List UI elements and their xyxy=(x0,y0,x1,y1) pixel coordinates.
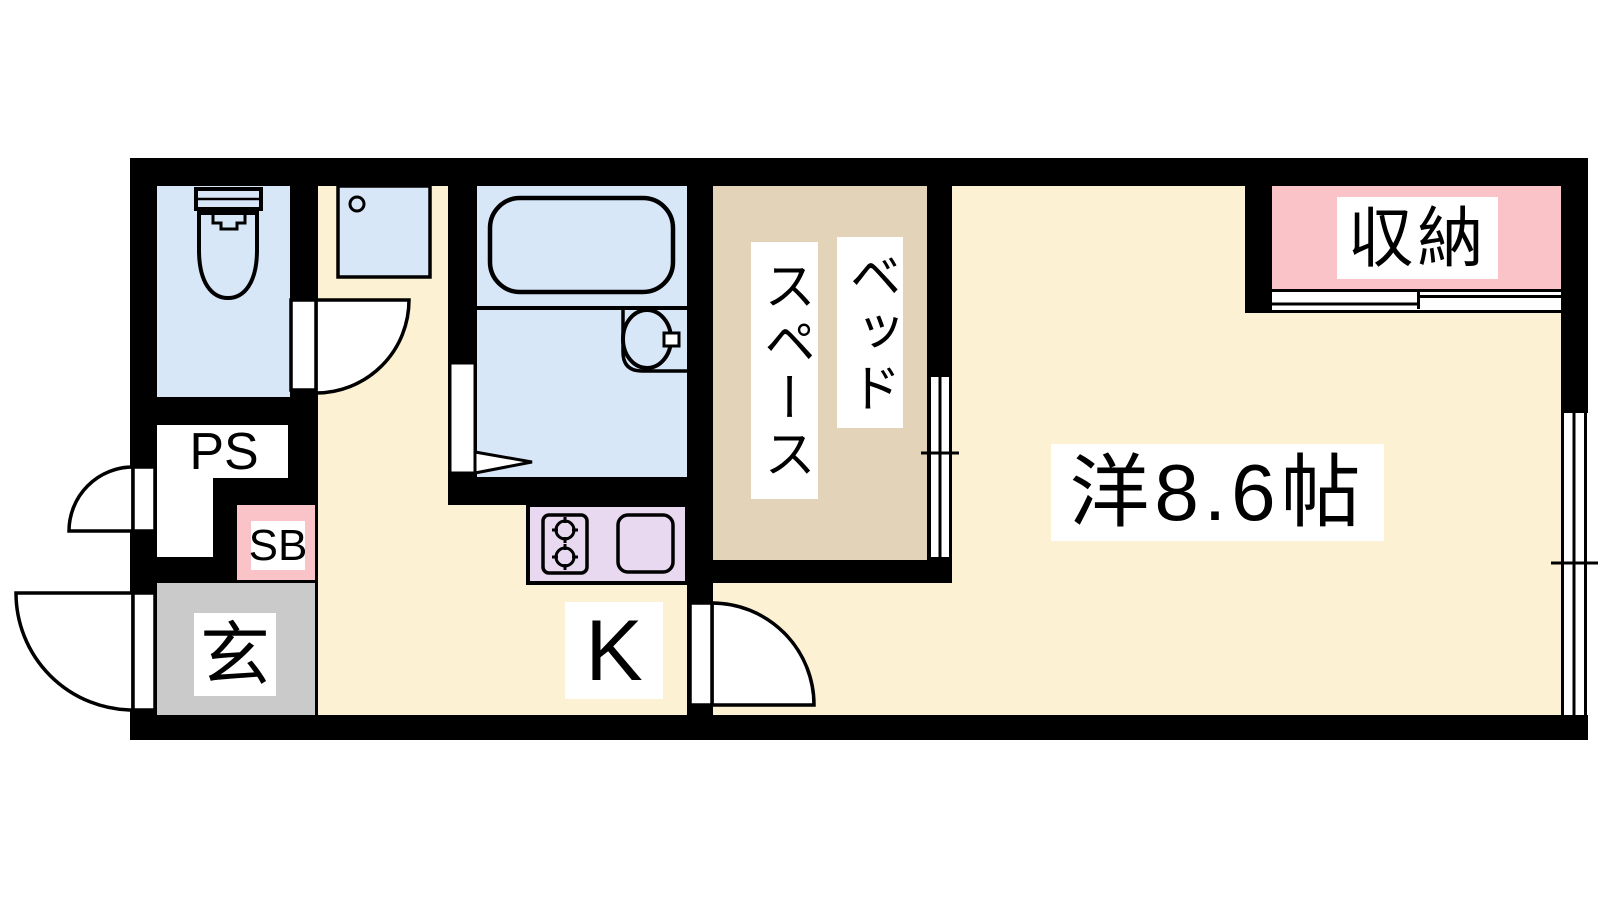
bathroom-door-leaf xyxy=(450,363,475,473)
floor-plan-canvas: PS SB 玄 K ベッド スペース 洋8.6帖 収納 xyxy=(0,0,1600,900)
service-door-leaf xyxy=(133,467,155,531)
bath-sink-tap xyxy=(664,333,679,346)
service-door-swing xyxy=(69,467,133,531)
entrance-step-line xyxy=(315,505,318,715)
label-kitchen: K xyxy=(565,602,663,699)
label-pipe-space: PS xyxy=(160,427,288,477)
bathroom-floor xyxy=(477,186,687,477)
washbasin-icon xyxy=(338,186,430,277)
kitchen-door-leaf xyxy=(690,603,712,705)
entrance-door-swing xyxy=(16,593,133,710)
entrance-door-leaf xyxy=(133,593,155,710)
label-entrance: 玄 xyxy=(194,613,276,696)
kitchen-stove xyxy=(528,505,687,583)
closet-sliding-door-panel xyxy=(1272,289,1561,313)
label-bed-space-line2: スペース xyxy=(751,242,818,499)
toilet-room-floor xyxy=(157,186,290,397)
closet-left-wall xyxy=(1245,158,1272,313)
closet-sliding-door xyxy=(1272,289,1561,313)
label-closet: 収納 xyxy=(1337,197,1498,279)
toilet-door-leaf xyxy=(291,300,316,390)
label-western-room: 洋8.6帖 xyxy=(1051,444,1384,541)
label-bed-space-line1: ベッド xyxy=(837,237,903,428)
label-shoe-box: SB xyxy=(251,521,305,570)
pipe-space-floor-lower xyxy=(157,478,213,557)
